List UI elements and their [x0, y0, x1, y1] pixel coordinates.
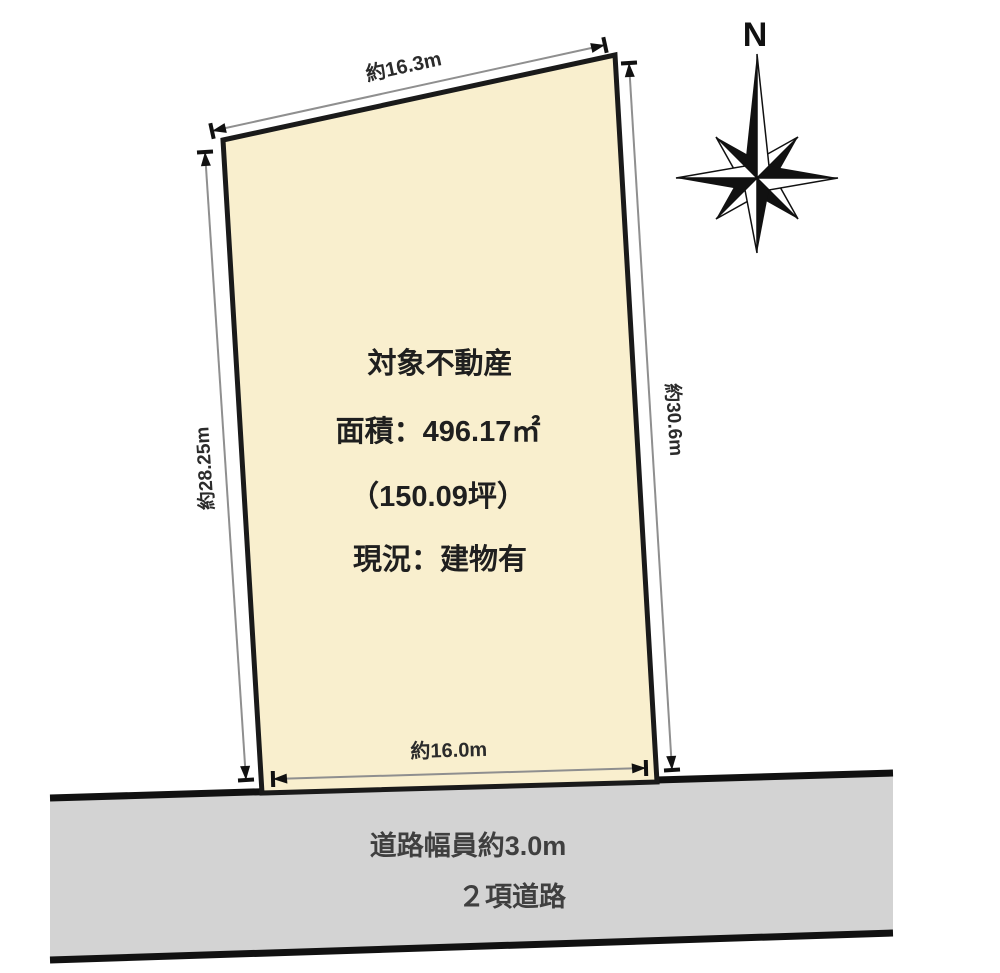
compass-north-label: N [743, 16, 768, 54]
dimension-left-tick-bottom [238, 780, 254, 781]
dimension-top-label: 約16.3m [363, 46, 443, 86]
site-plan-diagram: 道路幅員約3.0m ２項道路 対象不動産 面積：496.17㎡ （150.09坪… [0, 0, 1000, 973]
road-type-label: ２項道路 [458, 881, 567, 912]
road: 道路幅員約3.0m ２項道路 [50, 773, 893, 960]
dimension-top-tick-left [210, 123, 213, 139]
compass-rose-icon: N [676, 16, 838, 253]
compass-n-black [745, 54, 757, 178]
compass-w-white [676, 166, 757, 178]
parcel-status: 現況：建物有 [353, 543, 527, 576]
parcel-title: 対象不動産 [367, 347, 512, 380]
compass-w-black [676, 178, 757, 190]
road-surface [50, 773, 893, 960]
parcel-tsubo: （150.09坪） [350, 480, 526, 513]
parcel-area: 面積：496.17㎡ [336, 414, 541, 448]
dimension-right-tick-top [621, 63, 637, 64]
compass-n-white [757, 54, 769, 178]
compass-e-black [757, 166, 838, 178]
dimension-bottom-label: 約16.0m [410, 737, 487, 763]
dimension-right-label: 約30.6m [661, 383, 688, 457]
dimension-left-tick-top [197, 152, 213, 153]
compass-s-black [757, 178, 769, 253]
compass-s-white [745, 178, 757, 253]
parcel: 対象不動産 面積：496.17㎡ （150.09坪） 現況：建物有 [223, 55, 657, 793]
site-plan-svg: 道路幅員約3.0m ２項道路 対象不動産 面積：496.17㎡ （150.09坪… [0, 0, 1000, 973]
compass-e-white [757, 178, 838, 190]
dimension-top-tick-right [603, 37, 606, 53]
dimension-left-label: 約28.25m [190, 426, 218, 511]
dimension-right-tick-bottom [664, 770, 680, 771]
road-width-label: 道路幅員約3.0m [370, 830, 567, 861]
